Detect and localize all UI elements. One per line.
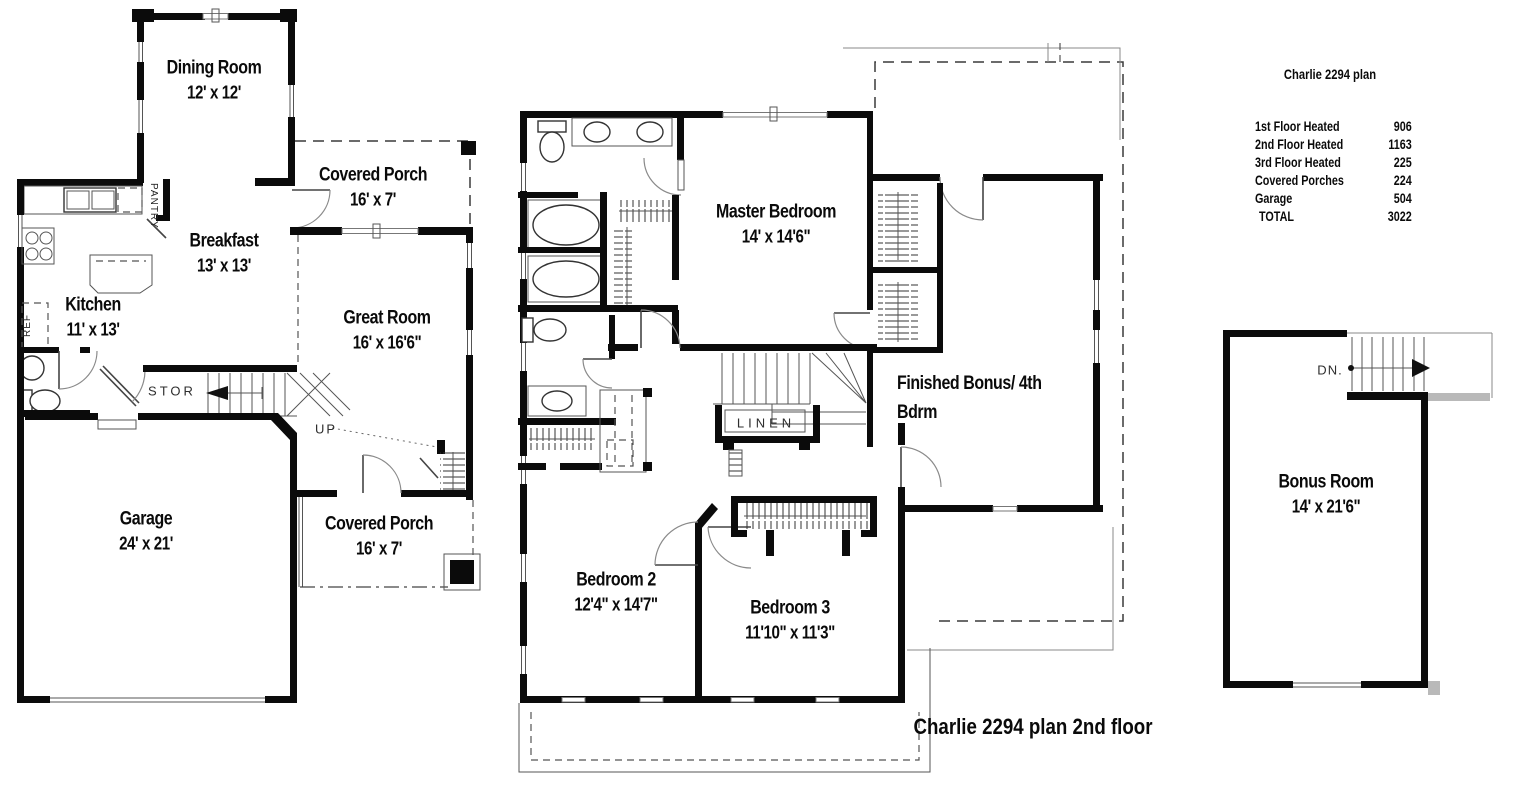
room-label-bonus-room: Bonus Room 14' x 21'6"	[1278, 470, 1373, 519]
room-dims: 11' x 13'	[65, 318, 121, 342]
summary-value: 504	[1394, 190, 1412, 208]
room-dims: 12' x 12'	[167, 81, 262, 105]
summary-row-total: TOTAL 3022	[1255, 208, 1412, 226]
linen-label: LINEN	[737, 416, 795, 431]
room-name: Dining Room	[167, 56, 262, 81]
room-name: Garage	[119, 507, 173, 532]
room-label-bedroom2: Bedroom 2 12'4" x 14'7"	[574, 568, 657, 617]
storage-label: STOR	[148, 384, 196, 399]
summary-row: Covered Porches 224	[1255, 172, 1412, 190]
summary-value: 906	[1394, 118, 1412, 136]
area-summary-table: 1st Floor Heated 906 2nd Floor Heated 11…	[1255, 118, 1412, 226]
room-name: Bonus Room	[1278, 470, 1373, 495]
room-name: Bedroom 3	[745, 596, 835, 621]
room-name: Master Bedroom	[716, 200, 836, 225]
room-dims: 13' x 13'	[190, 254, 259, 278]
room-dims: 12'4" x 14'7"	[574, 593, 657, 617]
summary-label: 2nd Floor Heated	[1255, 136, 1343, 154]
summary-label: Garage	[1255, 190, 1292, 208]
room-name: Breakfast	[190, 229, 259, 254]
stairs-down-label: DN.	[1317, 363, 1342, 378]
first-floor-plan	[17, 9, 480, 703]
room-name: Covered Porch	[319, 163, 427, 188]
room-dims: 24' x 21'	[119, 532, 173, 556]
summary-row: 2nd Floor Heated 1163	[1255, 136, 1412, 154]
second-floor-caption: Charlie 2294 plan 2nd floor	[913, 714, 1152, 740]
summary-value: 1163	[1388, 136, 1411, 154]
room-dims: 16' x 16'6"	[343, 331, 430, 355]
refrigerator-label: REF	[22, 314, 33, 337]
room-name: Great Room	[343, 306, 430, 331]
room-label-covered-porch-top: Covered Porch 16' x 7'	[319, 163, 427, 212]
floorplan-sheet: Dining Room 12' x 12' Covered Porch 16' …	[0, 0, 1538, 796]
summary-title: Charlie 2294 plan	[1284, 66, 1376, 82]
room-dims: 16' x 7'	[325, 537, 433, 561]
summary-row: 3rd Floor Heated 225	[1255, 154, 1412, 172]
room-label-finished-bonus: Finished Bonus/ 4th Bdrm	[897, 369, 1042, 427]
room-label-breakfast: Breakfast 13' x 13'	[190, 229, 259, 278]
room-name-line2: Bdrm	[897, 398, 1042, 427]
room-dims: 16' x 7'	[319, 188, 427, 212]
pantry-label: PANTRY	[148, 183, 159, 229]
room-label-dining: Dining Room 12' x 12'	[167, 56, 262, 105]
room-label-kitchen: Kitchen 11' x 13'	[65, 293, 121, 342]
room-name: Covered Porch	[325, 512, 433, 537]
summary-value: 3022	[1388, 208, 1412, 226]
room-name: Kitchen	[65, 293, 121, 318]
room-label-master-bedroom: Master Bedroom 14' x 14'6"	[716, 200, 836, 249]
summary-row: Garage 504	[1255, 190, 1412, 208]
room-label-covered-porch-bottom: Covered Porch 16' x 7'	[325, 512, 433, 561]
room-dims: 11'10" x 11'3"	[745, 621, 835, 645]
room-label-great-room: Great Room 16' x 16'6"	[343, 306, 430, 355]
room-label-garage: Garage 24' x 21'	[119, 507, 173, 556]
summary-label: Covered Porches	[1255, 172, 1344, 190]
summary-value: 225	[1394, 154, 1412, 172]
summary-row: 1st Floor Heated 906	[1255, 118, 1412, 136]
summary-label: 3rd Floor Heated	[1255, 154, 1341, 172]
room-name-line1: Finished Bonus/ 4th	[897, 369, 1042, 398]
room-name: Bedroom 2	[574, 568, 657, 593]
room-dims: 14' x 21'6"	[1278, 495, 1373, 519]
room-label-bedroom3: Bedroom 3 11'10" x 11'3"	[745, 596, 835, 645]
summary-value: 224	[1394, 172, 1412, 190]
stairs-up-label: UP	[315, 422, 337, 437]
room-dims: 14' x 14'6"	[716, 225, 836, 249]
summary-label: TOTAL	[1259, 208, 1294, 226]
summary-label: 1st Floor Heated	[1255, 118, 1340, 136]
